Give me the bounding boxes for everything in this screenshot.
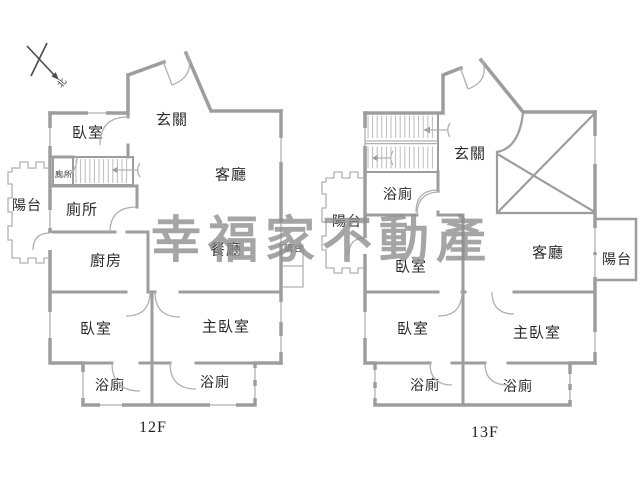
stairs-13f	[368, 116, 432, 169]
floor-plan-12f-walls	[50, 53, 281, 405]
balcony-railing-12f	[8, 162, 50, 263]
stairs-12f	[76, 159, 127, 183]
floor-plan-page: 幸福家不動產 臥室玄關客廳廁所廁所陽台廚房餐廳陽台臥室主臥室浴廁浴廁玄關浴廁陽台…	[0, 0, 640, 480]
thin-details	[8, 52, 595, 405]
balcony-railing-12f-right	[283, 245, 303, 287]
balcony-railing-13f	[322, 172, 364, 273]
stair-arrow-13f-lower	[372, 151, 393, 165]
north-arrow-icon	[27, 43, 59, 80]
floor-plan-canvas	[0, 0, 640, 480]
stair-arrow-12f	[112, 163, 140, 177]
void-x-box	[497, 113, 595, 213]
floor-caption-13f: 13F	[471, 424, 499, 442]
floor-caption-12f: 12F	[139, 419, 167, 437]
